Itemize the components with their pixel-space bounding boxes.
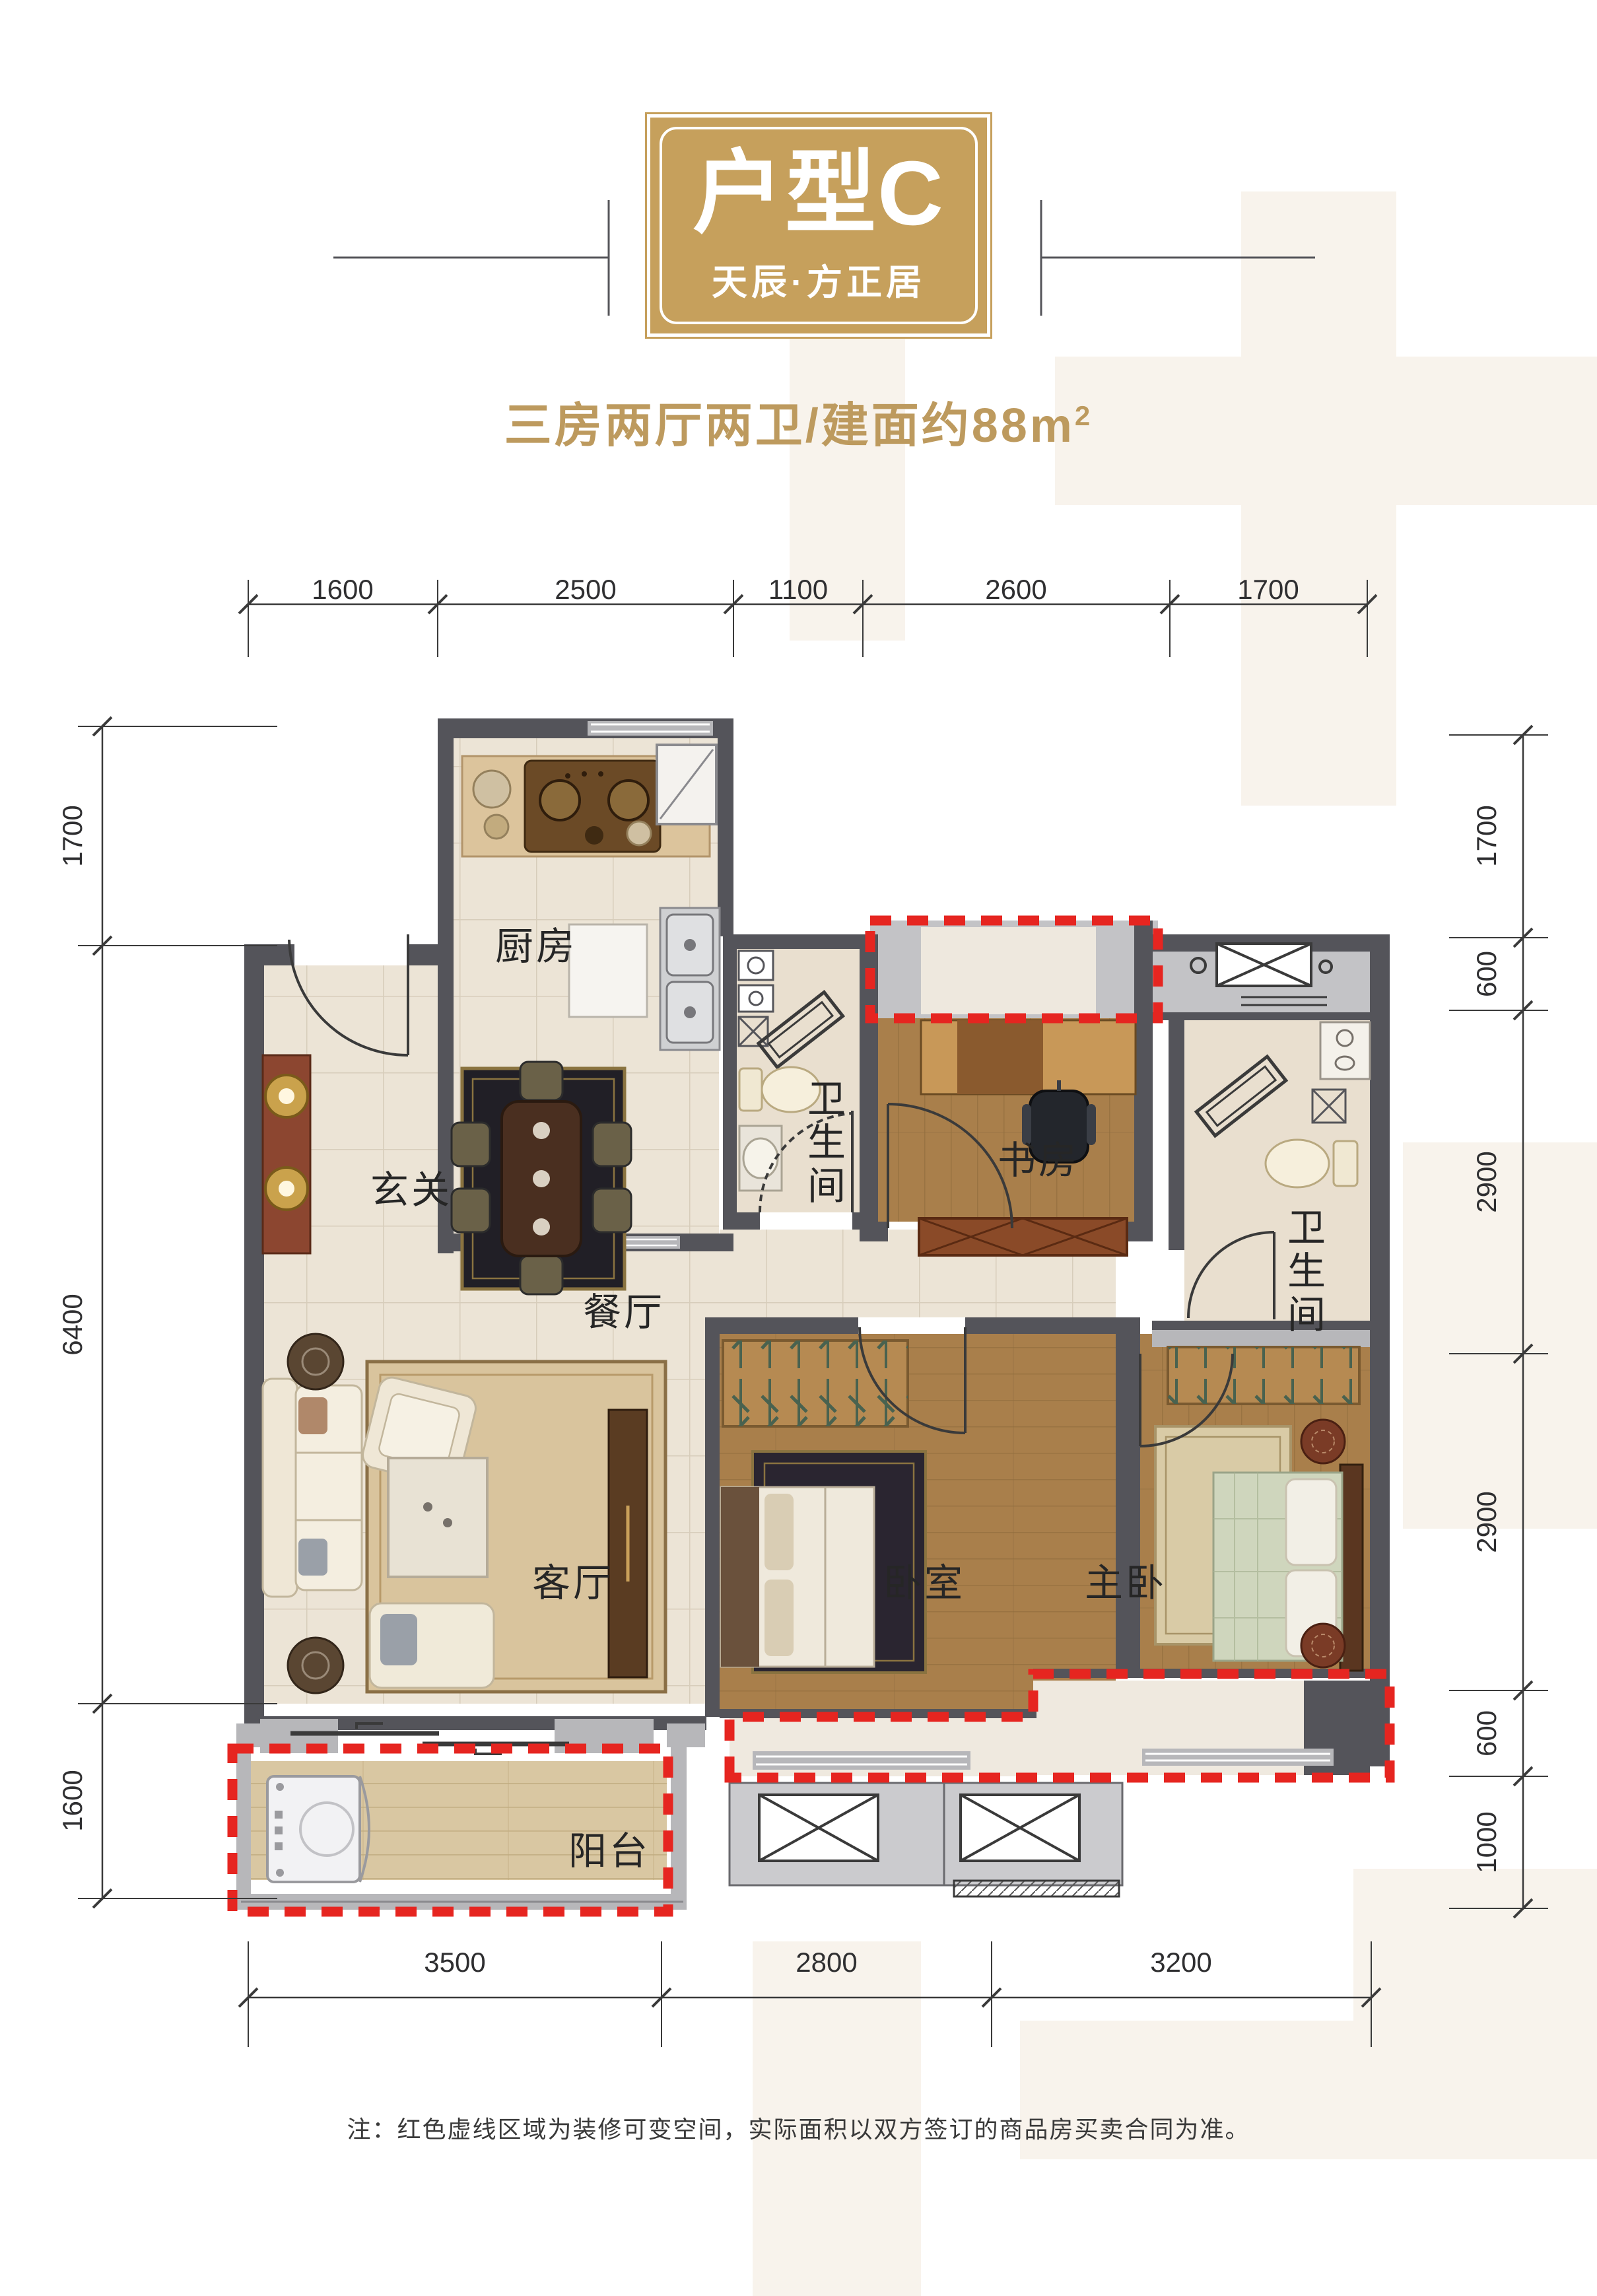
bedroom-furniture (721, 1340, 926, 1673)
dim-bottom-2: 2800 (796, 1947, 857, 1978)
room-label-entry: 玄关 (370, 1159, 452, 1214)
room-label-bath2: 卫生间 (1275, 1207, 1330, 1338)
coffee-table-icon (388, 1458, 487, 1577)
tv-cabinet-icon (609, 1410, 647, 1677)
living-room-furniture (263, 1334, 665, 1693)
dim-top-3: 1100 (768, 574, 828, 606)
chaise-icon (370, 1603, 494, 1688)
side-table-icon (288, 1334, 343, 1389)
dim-bottom-3: 3200 (1150, 1947, 1211, 1978)
dim-top-1: 1600 (312, 574, 373, 606)
sofa-icon (263, 1379, 362, 1597)
room-label-balcony: 阳台 (568, 1820, 650, 1875)
master-furniture (1155, 1347, 1363, 1671)
dim-left-1: 1700 (57, 805, 88, 866)
floorplan-page: 户型C 天辰·方正居 三房两厅两卫/建面约88m2 厨房 玄关 餐厅 客厅 卧室… (0, 0, 1597, 2296)
dim-right-3: 2900 (1471, 1151, 1503, 1212)
summary-text: 三房两厅两卫/建面约88m (504, 400, 1075, 452)
summary-superscript: 2 (1075, 400, 1093, 431)
footer-note: 注：红色虚线区域为装修可变空间，实际面积以双方签订的商品房买卖合同为准。 (0, 2110, 1597, 2145)
dim-left-3: 1600 (57, 1770, 88, 1831)
dim-right-4: 2900 (1471, 1491, 1503, 1552)
room-label-bedroom: 卧室 (883, 1552, 965, 1607)
dim-bottom-1: 3500 (424, 1947, 485, 1978)
stool-icon (1301, 1420, 1345, 1463)
room-label-master: 主卧 (1085, 1552, 1167, 1607)
kitchen-table-icon (569, 924, 647, 1017)
dim-right-2: 600 (1471, 951, 1503, 997)
unit-summary: 三房两厅两卫/建面约88m2 (0, 386, 1597, 456)
dining-table-icon (452, 1062, 631, 1294)
dim-right-1: 1700 (1471, 805, 1503, 866)
room-label-kitchen: 厨房 (495, 915, 577, 971)
room-label-study: 书房 (998, 1129, 1079, 1185)
room-label-dining: 餐厅 (583, 1281, 665, 1337)
entry-console-icon (263, 1055, 310, 1253)
dim-right-6: 1000 (1471, 1811, 1503, 1873)
dim-top-2: 2500 (555, 574, 616, 606)
side-table-icon (288, 1638, 343, 1693)
room-label-living: 客厅 (532, 1552, 614, 1607)
badge-title: 户型C (693, 146, 945, 242)
dim-top-5: 1700 (1237, 574, 1299, 606)
badge-subtitle: 天辰·方正居 (712, 253, 926, 305)
fridge-icon (657, 745, 716, 824)
washing-machine-icon (267, 1776, 369, 1882)
kitchen-sink-icon (660, 908, 720, 1050)
dim-left-2: 6400 (57, 1294, 88, 1355)
toilet-icon (1266, 1140, 1357, 1187)
bed-icon (721, 1487, 874, 1667)
stool-icon (1301, 1624, 1345, 1667)
dim-top-4: 2600 (985, 574, 1046, 606)
bookshelf-icon (919, 1218, 1127, 1255)
dim-right-5: 600 (1471, 1710, 1503, 1757)
unit-type-badge: 户型C 天辰·方正居 (647, 114, 990, 337)
room-label-bath1: 卫生间 (795, 1078, 850, 1209)
